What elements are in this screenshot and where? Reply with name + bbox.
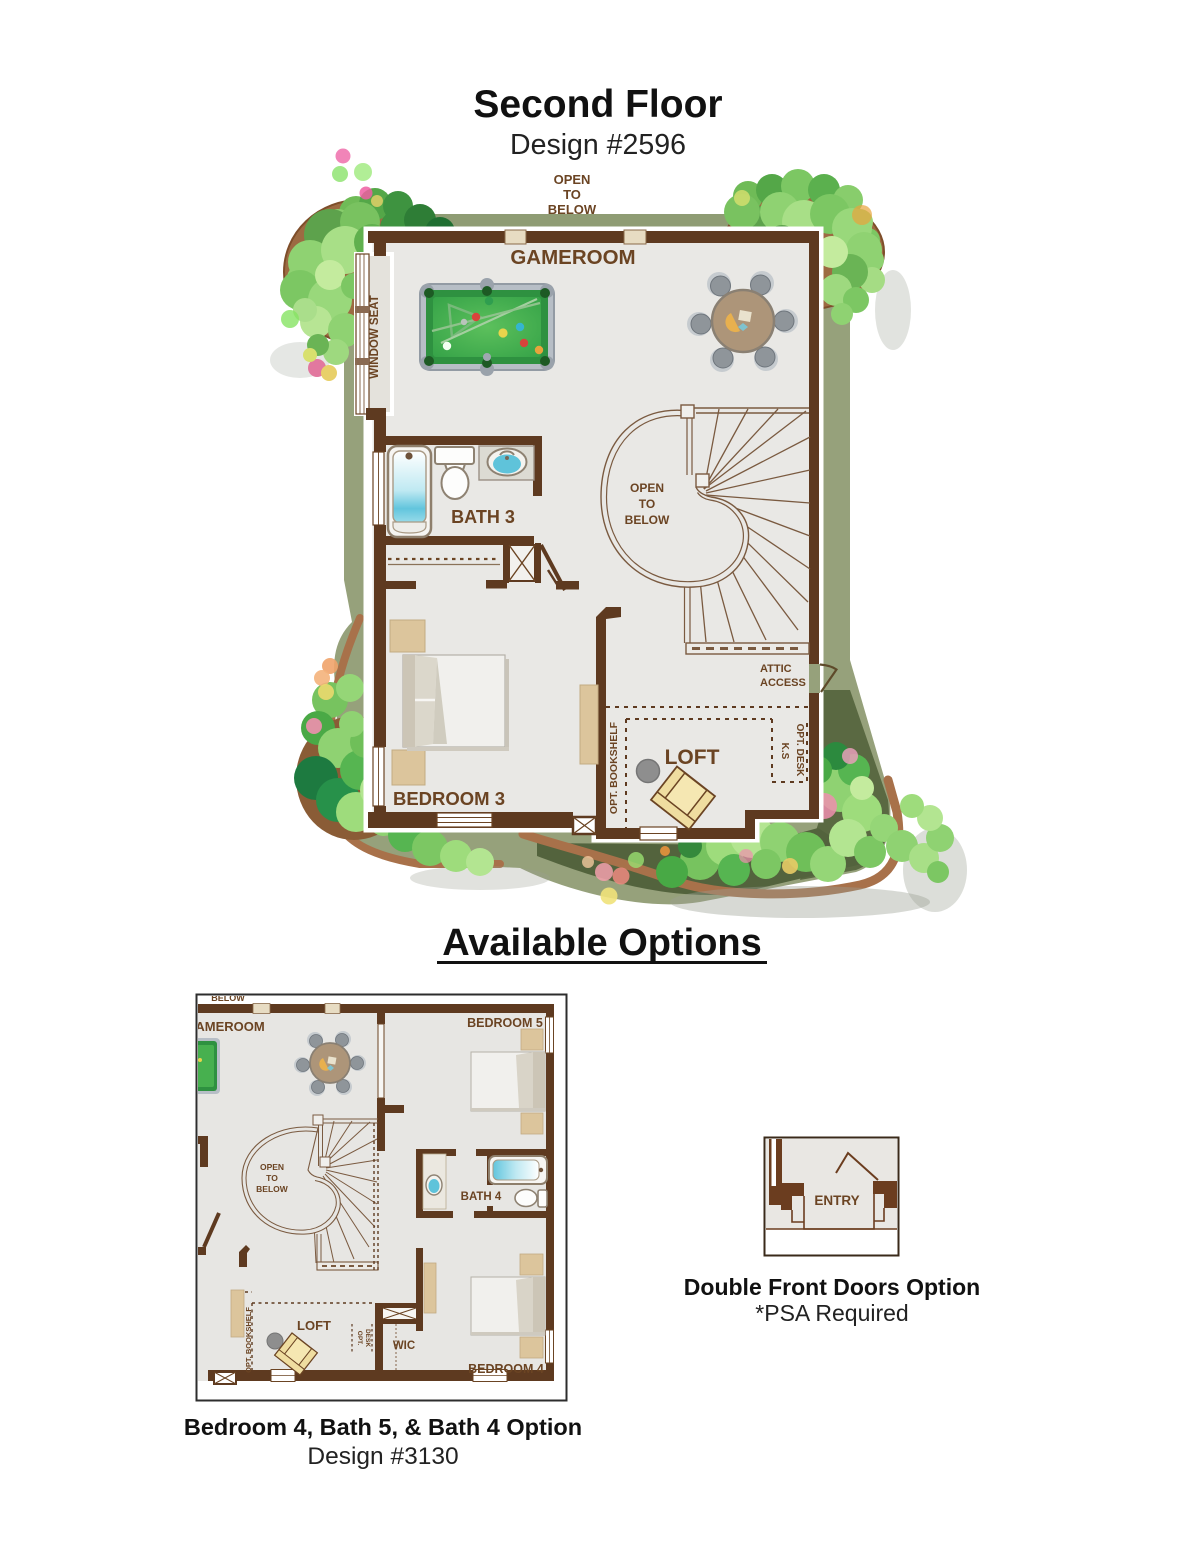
svg-text:BEDROOM 4: BEDROOM 4 <box>468 1362 544 1376</box>
svg-text:Design #2596: Design #2596 <box>510 129 686 161</box>
svg-text:TO: TO <box>639 497 655 511</box>
svg-text:OPT. BOOKSHELF: OPT. BOOKSHELF <box>244 1307 253 1373</box>
svg-text:BATH 4: BATH 4 <box>461 1191 502 1203</box>
svg-text:TO: TO <box>563 187 581 202</box>
svg-text:Double Front Doors Option: Double Front Doors Option <box>684 1274 980 1300</box>
svg-text:Available Options: Available Options <box>442 922 762 964</box>
svg-text:OPT. DESK: OPT. DESK <box>794 724 805 778</box>
svg-text:Bedroom 4, Bath 5, & Bath 4 Op: Bedroom 4, Bath 5, & Bath 4 Option <box>184 1414 582 1440</box>
svg-text:LOFT: LOFT <box>665 746 720 769</box>
svg-text:BELOW: BELOW <box>256 1184 289 1194</box>
svg-text:BELOW: BELOW <box>625 513 670 527</box>
svg-text:BATH 3: BATH 3 <box>451 507 515 527</box>
svg-text:OPT. BOOKSHELF: OPT. BOOKSHELF <box>608 721 620 814</box>
svg-text:BEDROOM 5: BEDROOM 5 <box>467 1016 543 1030</box>
svg-text:GAMEROOM: GAMEROOM <box>510 246 635 269</box>
svg-text:OPEN: OPEN <box>630 481 664 495</box>
svg-text:Second Floor: Second Floor <box>473 83 722 126</box>
svg-text:Design #3130: Design #3130 <box>307 1443 458 1470</box>
svg-text:WINDOW SEAT: WINDOW SEAT <box>369 295 381 378</box>
svg-text:DESK: DESK <box>364 1329 371 1347</box>
svg-text:LOFT: LOFT <box>297 1318 331 1333</box>
svg-text:BEDROOM 3: BEDROOM 3 <box>393 788 505 809</box>
svg-text:OPT.: OPT. <box>356 1331 363 1346</box>
svg-text:TO: TO <box>266 1173 278 1183</box>
svg-text:ACCESS: ACCESS <box>760 677 806 689</box>
svg-text:ATTIC: ATTIC <box>760 663 792 675</box>
svg-text:K.S: K.S <box>779 743 790 760</box>
svg-text:*PSA Required: *PSA Required <box>755 1300 908 1326</box>
svg-text:OPEN: OPEN <box>554 172 591 187</box>
svg-text:ENTRY: ENTRY <box>814 1193 859 1208</box>
svg-text:OPEN: OPEN <box>260 1162 284 1172</box>
